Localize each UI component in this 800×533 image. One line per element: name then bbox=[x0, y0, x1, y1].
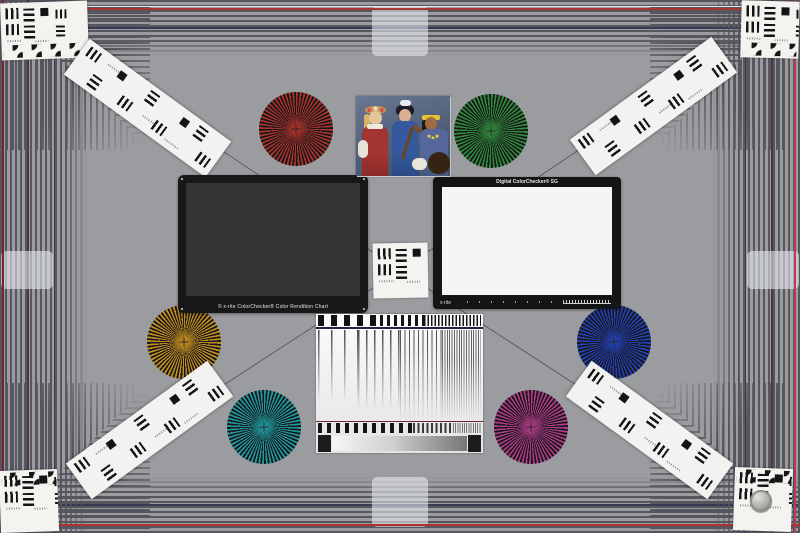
pie-marks bbox=[1, 471, 55, 486]
siemens-star-green bbox=[454, 94, 528, 168]
center-resolution-target bbox=[373, 243, 429, 299]
frequency-sweep-panel bbox=[316, 314, 483, 453]
siemens-star-red bbox=[259, 92, 333, 166]
musicians-reference-photo bbox=[356, 96, 450, 176]
corner-dot bbox=[363, 178, 365, 180]
sweep-segment bbox=[358, 330, 400, 420]
grayscale-end-block bbox=[318, 435, 331, 452]
resolution-target-top-right bbox=[740, 0, 799, 58]
color-patch bbox=[442, 187, 612, 295]
frame-line-crimson-right bbox=[794, 0, 796, 533]
pie-marks bbox=[3, 43, 86, 59]
colorchecker-classic-grid bbox=[186, 183, 360, 296]
grayscale-gradient-bar bbox=[332, 436, 467, 451]
figure-middle-headpiece bbox=[400, 100, 411, 106]
sg-tick-row bbox=[467, 301, 557, 303]
figure-right-white-sleeve bbox=[412, 158, 427, 170]
figure-left-face bbox=[369, 111, 382, 125]
colorchecker-sg: Digital ColorChecker® SG x-rite bbox=[433, 177, 621, 309]
sg-ruler-scale bbox=[563, 300, 611, 304]
frame-line-red-top bbox=[0, 8, 800, 10]
sweep-red-line bbox=[316, 421, 483, 422]
loupe-icon bbox=[750, 490, 773, 513]
colorchecker-classic-label: © x-rite ColorChecker® Color Rendition C… bbox=[178, 304, 368, 310]
siemens-star-teal bbox=[227, 390, 301, 464]
colorchecker-sg-grid bbox=[442, 187, 612, 295]
pie-marks bbox=[742, 42, 796, 56]
sweep-barcode-row bbox=[318, 423, 481, 433]
colorchecker-sg-title: Digital ColorChecker® SG bbox=[433, 179, 621, 185]
edge-tab-bottom bbox=[372, 477, 428, 527]
figure-left-white-sleeve bbox=[358, 140, 368, 158]
frame-line-maroon-left bbox=[2, 0, 4, 533]
corner-dot bbox=[363, 308, 365, 310]
sweep-segment bbox=[442, 330, 481, 420]
x-rite-logo: x-rite bbox=[440, 300, 451, 306]
figure-right-yellow-necklace bbox=[425, 132, 441, 139]
edge-tab-top bbox=[372, 6, 428, 56]
figure-left-collar bbox=[367, 124, 383, 129]
sweep-segment bbox=[318, 330, 358, 420]
sweep-line-area bbox=[318, 330, 481, 420]
color-patch bbox=[186, 183, 360, 296]
sweep-navy-line bbox=[316, 327, 483, 329]
resolution-target-top-left bbox=[0, 0, 89, 60]
corner-dot bbox=[181, 178, 183, 180]
grayscale-end-block bbox=[468, 435, 481, 452]
siemens-star-magenta bbox=[494, 390, 568, 464]
sweep-top-bars bbox=[318, 315, 481, 326]
resolution-target-bottom-left bbox=[0, 469, 59, 533]
edge-tab-left bbox=[1, 251, 53, 289]
resolution-target-bottom-right bbox=[733, 467, 793, 532]
frame-line-white-top bbox=[0, 6, 800, 7]
test-chart-scene: © x-rite ColorChecker® Color Rendition C… bbox=[0, 0, 800, 533]
frame-line-red-bottom bbox=[0, 524, 800, 526]
sweep-segment bbox=[400, 330, 442, 420]
corner-dot bbox=[181, 308, 183, 310]
figure-right-lute-body bbox=[428, 152, 450, 174]
colorchecker-classic: © x-rite ColorChecker® Color Rendition C… bbox=[178, 175, 368, 313]
pie-marks bbox=[737, 469, 791, 484]
edge-tab-right bbox=[747, 251, 799, 289]
